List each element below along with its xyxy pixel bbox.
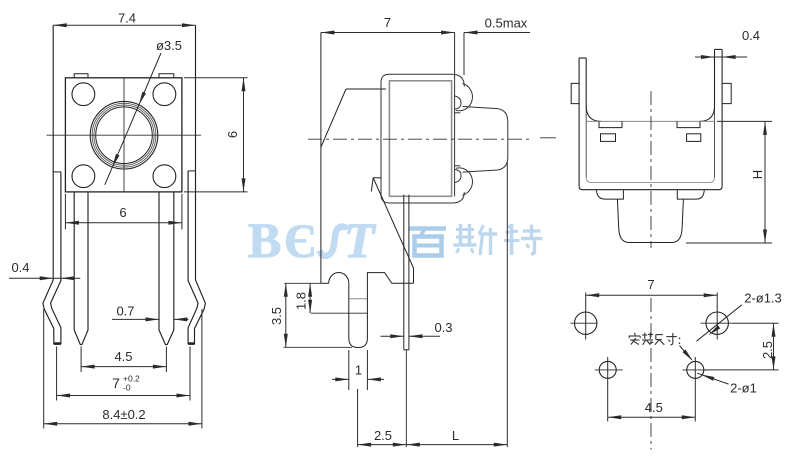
svg-text:3.5: 3.5 [269,307,284,325]
svg-text:7: 7 [647,277,654,292]
svg-text:1.8: 1.8 [294,292,309,310]
svg-text:0.7: 0.7 [116,304,134,319]
svg-text:0.5max: 0.5max [485,16,528,31]
svg-text:2.5: 2.5 [760,341,775,359]
svg-text:1: 1 [355,363,362,378]
svg-text:ø3.5: ø3.5 [156,38,182,53]
svg-text:0.4: 0.4 [742,28,760,43]
svg-text:B: B [248,212,281,268]
svg-text:H: H [750,170,765,179]
svg-text:-0: -0 [123,383,131,393]
svg-text:4.5: 4.5 [645,400,663,415]
svg-text:6: 6 [225,131,240,138]
svg-text:0.4: 0.4 [11,260,29,275]
svg-text:0.3: 0.3 [434,320,452,335]
svg-text:2.5: 2.5 [374,428,392,443]
svg-text:2-ø1.3: 2-ø1.3 [744,291,782,306]
svg-text:7.4: 7.4 [118,10,136,25]
svg-text:6: 6 [119,205,126,220]
svg-text:7: 7 [112,375,120,391]
svg-text:L: L [452,428,459,443]
svg-text:4.5: 4.5 [114,349,132,364]
svg-text:8.4±0.2: 8.4±0.2 [102,407,145,422]
svg-text:2-ø1: 2-ø1 [730,381,757,396]
svg-text:7: 7 [384,15,391,30]
svg-text:Є: Є [284,215,317,268]
svg-text:T: T [344,212,377,268]
